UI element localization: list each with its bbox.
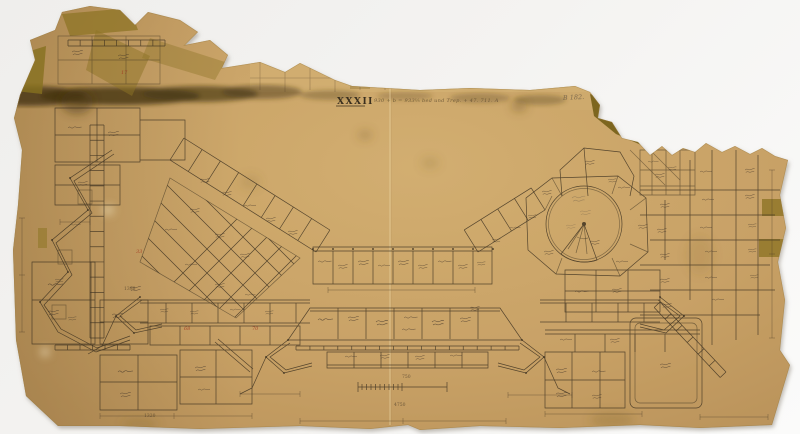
- red-mark: 33: [136, 249, 142, 255]
- red-mark: 17: [121, 70, 128, 76]
- dimension-label: 1320: [144, 413, 156, 419]
- scanned-plan-document: 68703317 139875047501320 XXXII 930 + b =…: [0, 0, 800, 434]
- corner-note: B 182.: [562, 93, 585, 102]
- dimension-label: 750: [402, 374, 411, 380]
- dimension-label: 1398: [124, 286, 136, 292]
- plan-canvas: 68703317 139875047501320 XXXII 930 + b =…: [0, 0, 800, 434]
- dimension-label: 4750: [394, 402, 406, 408]
- red-mark: 68: [184, 326, 190, 332]
- paper-light-band: [250, 58, 595, 92]
- title-numeral: XXXII: [337, 97, 374, 107]
- red-mark: 70: [252, 326, 259, 332]
- title-annotation: 930 + b = 933⅓ bed und Trep. + 47. 711. …: [374, 98, 499, 104]
